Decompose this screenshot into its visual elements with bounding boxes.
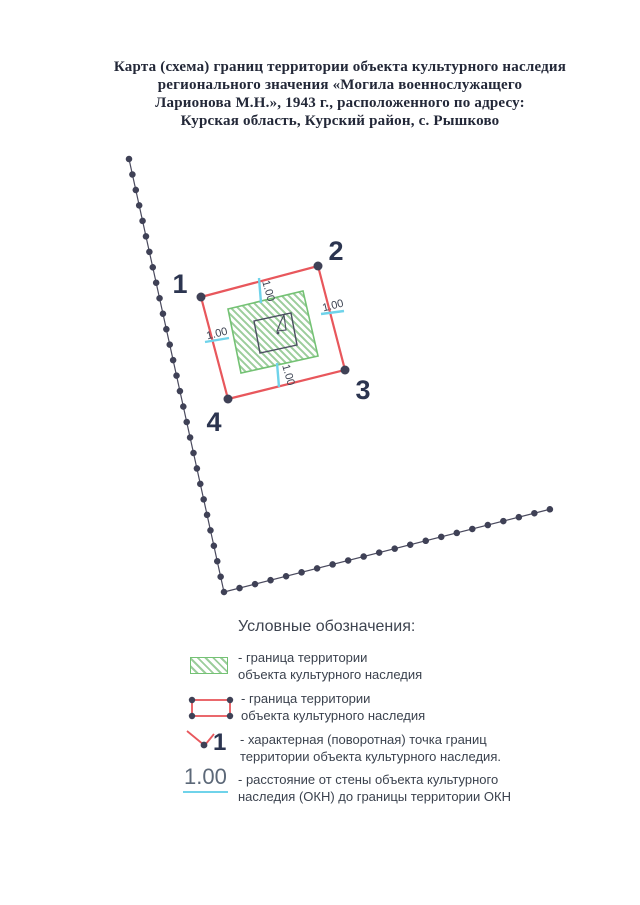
legend-heading: Условные обозначения:: [238, 618, 415, 636]
point-label-2: 2: [328, 236, 343, 266]
document-page: Карта (схема) границ территории объекта …: [0, 0, 640, 905]
legend-item-2-line-1: - граница территории: [241, 690, 425, 707]
legend-item-3-line-1: - характерная (поворотная) точка границ: [240, 731, 501, 748]
point-label-1: 1: [172, 269, 187, 299]
legend-item-2-label: - граница территории объекта культурного…: [241, 690, 425, 724]
heritage-territory-hatched-area: [228, 291, 318, 373]
legend-item-1-line-2: объекта культурного наследия: [238, 666, 422, 683]
turning-point-1: [197, 293, 206, 302]
legend-item-1-label: - граница территории объекта культурного…: [238, 649, 422, 683]
legend-item-4-line-1: - расстояние от стены объекта культурног…: [238, 771, 511, 788]
legend-turning-point-symbol: [184, 728, 216, 754]
point-label-4: 4: [206, 407, 221, 437]
legend-hatched-area-swatch: [190, 657, 228, 674]
legend-item-4-label: - расстояние от стены объекта культурног…: [238, 771, 511, 805]
legend-item-3-line-2: территории объекта культурного наследия.: [240, 748, 501, 765]
legend-item-1-line-1: - граница территории: [238, 649, 422, 666]
legend-item-4-line-2: наследия (ОКН) до границы территории ОКН: [238, 788, 511, 805]
legend-item-3-label: - характерная (поворотная) точка границ …: [240, 731, 501, 765]
legend-red-boundary-symbol: [186, 694, 236, 724]
legend-distance-symbol: 1.00: [183, 764, 228, 793]
dimension-label-bottom: 1.00: [279, 363, 296, 387]
dimension-tick-bottom: [277, 363, 279, 387]
cadastral-boundary-left-segment: [129, 159, 224, 592]
turning-point-3: [341, 366, 350, 375]
point-label-3: 3: [355, 375, 370, 405]
turning-point-2: [314, 262, 323, 271]
turning-point-4: [224, 395, 233, 404]
legend-turning-point-number: 1: [213, 729, 226, 757]
legend-item-2-line-2: объекта культурного наследия: [241, 707, 425, 724]
boundary-point-dots: [129, 159, 224, 592]
cadastral-boundary-right-segment: [224, 509, 551, 592]
boundary-map-diagram: 1.00 1.00 1.00 1.00 1 2 3 4: [0, 0, 640, 905]
